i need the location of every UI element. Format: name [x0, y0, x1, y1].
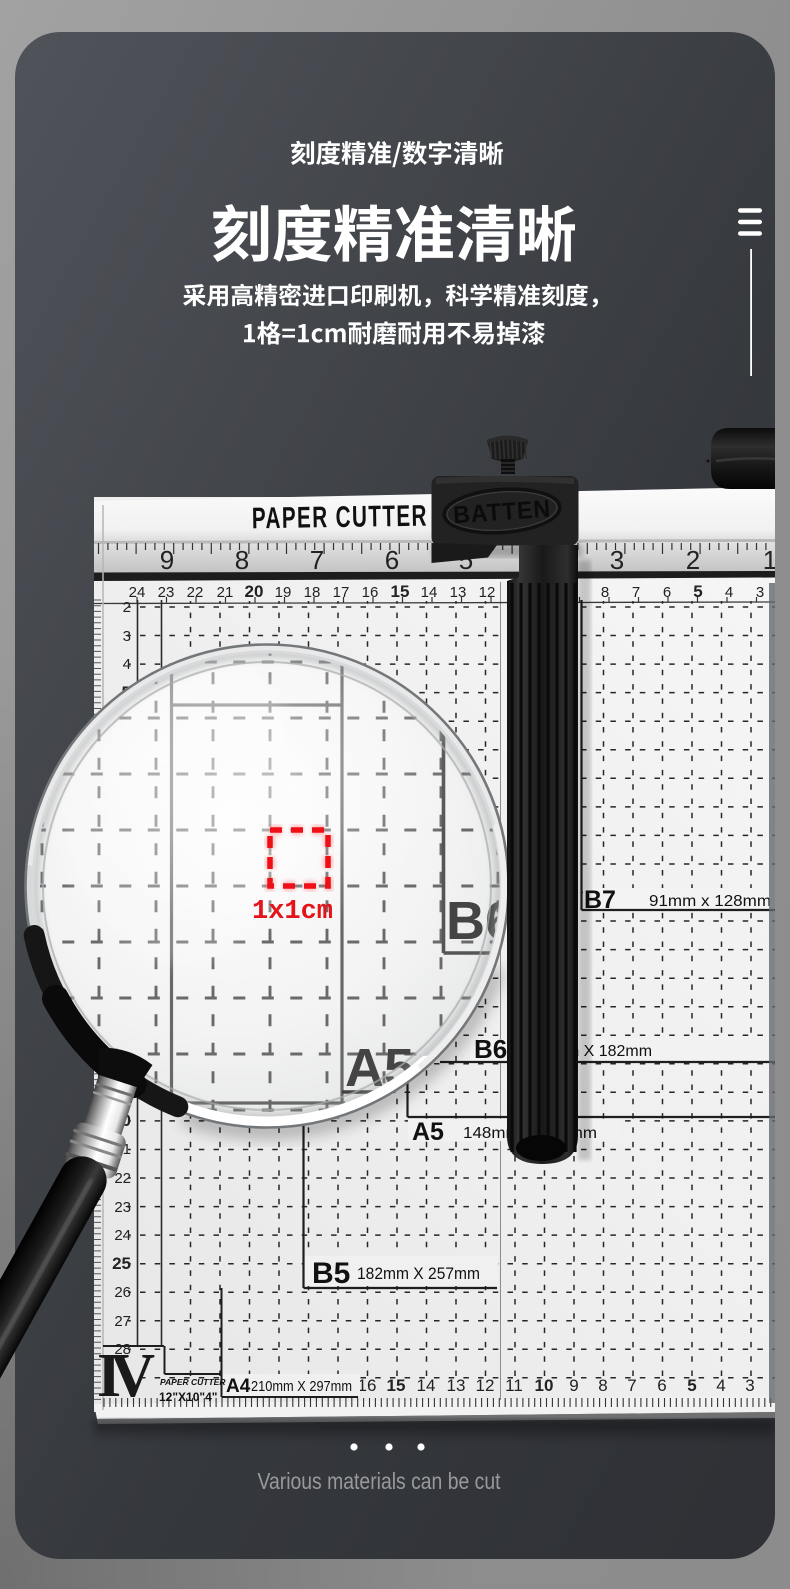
svg-text:23: 23: [114, 1199, 131, 1216]
svg-text:2: 2: [686, 545, 700, 575]
svg-text:B6: B6: [474, 1034, 507, 1064]
svg-text:8: 8: [598, 1376, 607, 1395]
svg-text:16: 16: [362, 584, 379, 601]
svg-text:17: 17: [333, 584, 350, 601]
svg-text:6: 6: [657, 1376, 666, 1395]
svg-text:A4: A4: [226, 1376, 251, 1397]
svg-text:5: 5: [687, 1376, 696, 1395]
svg-text:7: 7: [310, 545, 324, 575]
svg-text:14: 14: [421, 584, 438, 601]
svg-text:Various materials can be cut: Various materials can be cut: [258, 1468, 502, 1494]
svg-text:7: 7: [627, 1376, 636, 1395]
svg-text:PAPER CUTTER: PAPER CUTTER: [252, 500, 428, 536]
svg-text:1x1cm: 1x1cm: [252, 897, 333, 927]
svg-text:B5: B5: [312, 1257, 350, 1290]
svg-text:PAPER CUTTER: PAPER CUTTER: [160, 1377, 226, 1387]
svg-text:19: 19: [275, 584, 292, 601]
svg-text:15: 15: [387, 1376, 406, 1395]
svg-text:3: 3: [610, 545, 624, 575]
svg-text:210mm X 297mm: 210mm X 297mm: [251, 1378, 352, 1395]
svg-text:22: 22: [187, 584, 204, 601]
svg-text:16: 16: [358, 1376, 377, 1395]
svg-text:9: 9: [569, 1376, 578, 1395]
svg-text:9: 9: [160, 545, 174, 575]
svg-text:11: 11: [505, 1376, 523, 1395]
svg-text:12: 12: [476, 1376, 495, 1395]
svg-text:13: 13: [450, 584, 467, 601]
svg-text:A5: A5: [412, 1118, 444, 1146]
svg-text:182mm X 257mm: 182mm X 257mm: [357, 1264, 480, 1283]
svg-text:8: 8: [601, 584, 609, 601]
svg-text:91mm x 128mm: 91mm x 128mm: [649, 893, 771, 910]
svg-text:4: 4: [725, 584, 733, 601]
svg-text:6: 6: [385, 545, 399, 575]
svg-text:6: 6: [663, 584, 671, 601]
svg-text:10: 10: [535, 1376, 554, 1395]
svg-text:12: 12: [479, 584, 496, 601]
svg-text:13: 13: [447, 1376, 466, 1395]
svg-text:18: 18: [304, 584, 321, 601]
svg-text:4: 4: [716, 1376, 725, 1395]
svg-text:IV: IV: [97, 1342, 155, 1410]
svg-text:14: 14: [417, 1376, 436, 1395]
svg-text:8: 8: [235, 545, 249, 575]
svg-text:3: 3: [123, 628, 131, 645]
svg-text:15: 15: [391, 582, 410, 601]
svg-text:12"X10"4": 12"X10"4": [159, 1390, 217, 1404]
svg-text:20: 20: [245, 582, 264, 601]
svg-text:3: 3: [745, 1376, 754, 1395]
